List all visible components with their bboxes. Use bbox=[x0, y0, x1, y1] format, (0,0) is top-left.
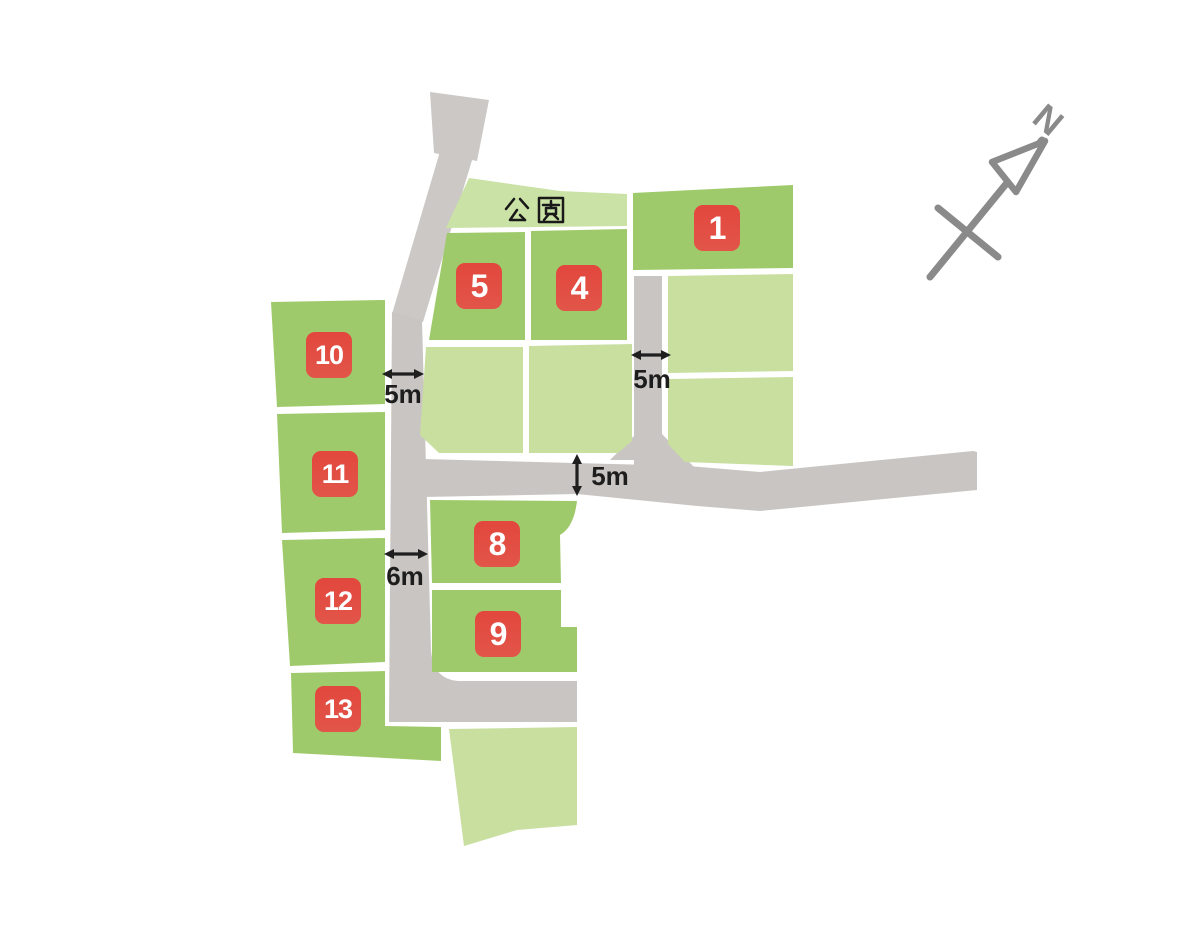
dim-arrow-middle-road bbox=[570, 453, 584, 497]
lot-badge-1: 1 bbox=[694, 205, 740, 251]
light-lot-east-upper bbox=[668, 274, 793, 373]
park-label-glyph bbox=[503, 195, 567, 225]
lot-badge-8: 8 bbox=[474, 521, 520, 567]
road-top-head bbox=[430, 92, 489, 161]
dim-label-west-upper: 5m bbox=[378, 381, 428, 407]
lot-badge-9: 9 bbox=[475, 611, 521, 657]
lot-badge-4: 4 bbox=[556, 265, 602, 311]
lot-badge-12: 12 bbox=[315, 578, 361, 624]
lot-badge-13: 13 bbox=[315, 686, 361, 732]
lot-badge-11: 11 bbox=[312, 451, 358, 497]
lot-badge-10: 10 bbox=[306, 332, 352, 378]
light-lot-center-left bbox=[420, 347, 523, 453]
dim-label-middle-road: 5m bbox=[586, 463, 634, 489]
lot-badge-5: 5 bbox=[456, 263, 502, 309]
dim-label-west-lower: 6m bbox=[380, 563, 430, 589]
north-arrow-icon bbox=[918, 96, 1088, 296]
light-lot-center-right bbox=[529, 344, 632, 453]
park-label: 公園 bbox=[503, 195, 569, 225]
lot-map-canvas: 1 4 5 8 9 10 11 12 13 公園 5m bbox=[0, 0, 1200, 938]
compass: N bbox=[918, 96, 1088, 296]
light-lot-south bbox=[449, 727, 577, 846]
light-lot-east-lower bbox=[668, 377, 793, 466]
dim-label-center-road: 5m bbox=[628, 366, 676, 392]
dim-arrow-west-lower bbox=[383, 546, 429, 562]
dim-arrow-center-road bbox=[630, 348, 672, 362]
